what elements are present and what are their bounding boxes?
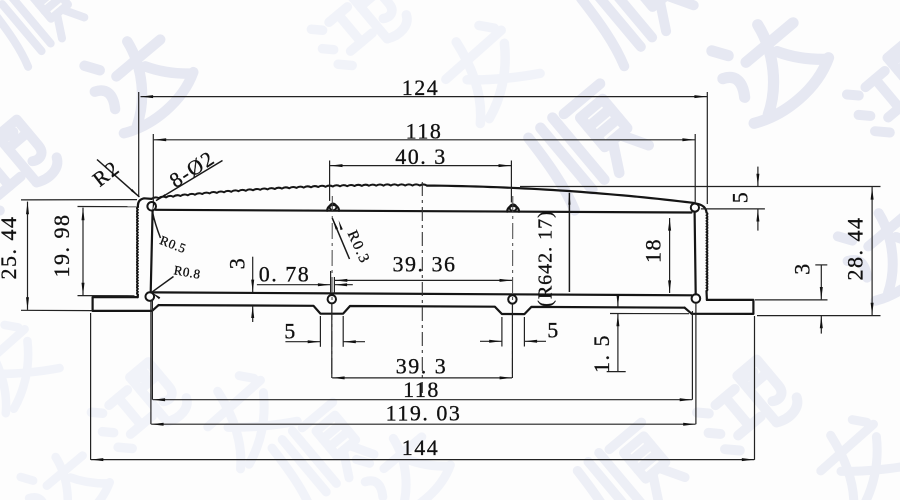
- svg-text:28. 44: 28. 44: [843, 217, 868, 281]
- svg-text:R0.5: R0.5: [158, 232, 189, 256]
- svg-text:1. 5: 1. 5: [589, 334, 614, 373]
- svg-text:5: 5: [547, 318, 560, 343]
- svg-text:R2: R2: [88, 156, 124, 192]
- svg-text:144: 144: [402, 435, 440, 460]
- svg-text:39. 36: 39. 36: [393, 252, 457, 277]
- svg-text:124: 124: [402, 75, 440, 100]
- svg-text:25. 44: 25. 44: [0, 216, 21, 280]
- svg-text:0. 78: 0. 78: [259, 262, 311, 287]
- svg-text:119. 03: 119. 03: [386, 401, 462, 426]
- svg-text:3: 3: [225, 257, 250, 270]
- svg-text:40. 3: 40. 3: [395, 144, 447, 169]
- svg-text:118: 118: [403, 377, 440, 402]
- svg-text:(R642. 17): (R642. 17): [535, 210, 557, 307]
- svg-text:19. 98: 19. 98: [49, 214, 74, 278]
- svg-text:R0.3: R0.3: [344, 228, 373, 266]
- svg-text:18: 18: [641, 238, 666, 263]
- svg-text:5: 5: [284, 319, 297, 344]
- svg-text:3: 3: [790, 262, 815, 275]
- svg-text:5: 5: [728, 191, 753, 204]
- svg-text:R0.8: R0.8: [173, 262, 202, 281]
- svg-text:39. 3: 39. 3: [396, 354, 448, 379]
- svg-text:8-Ø2: 8-Ø2: [165, 146, 219, 193]
- svg-text:118: 118: [406, 119, 443, 144]
